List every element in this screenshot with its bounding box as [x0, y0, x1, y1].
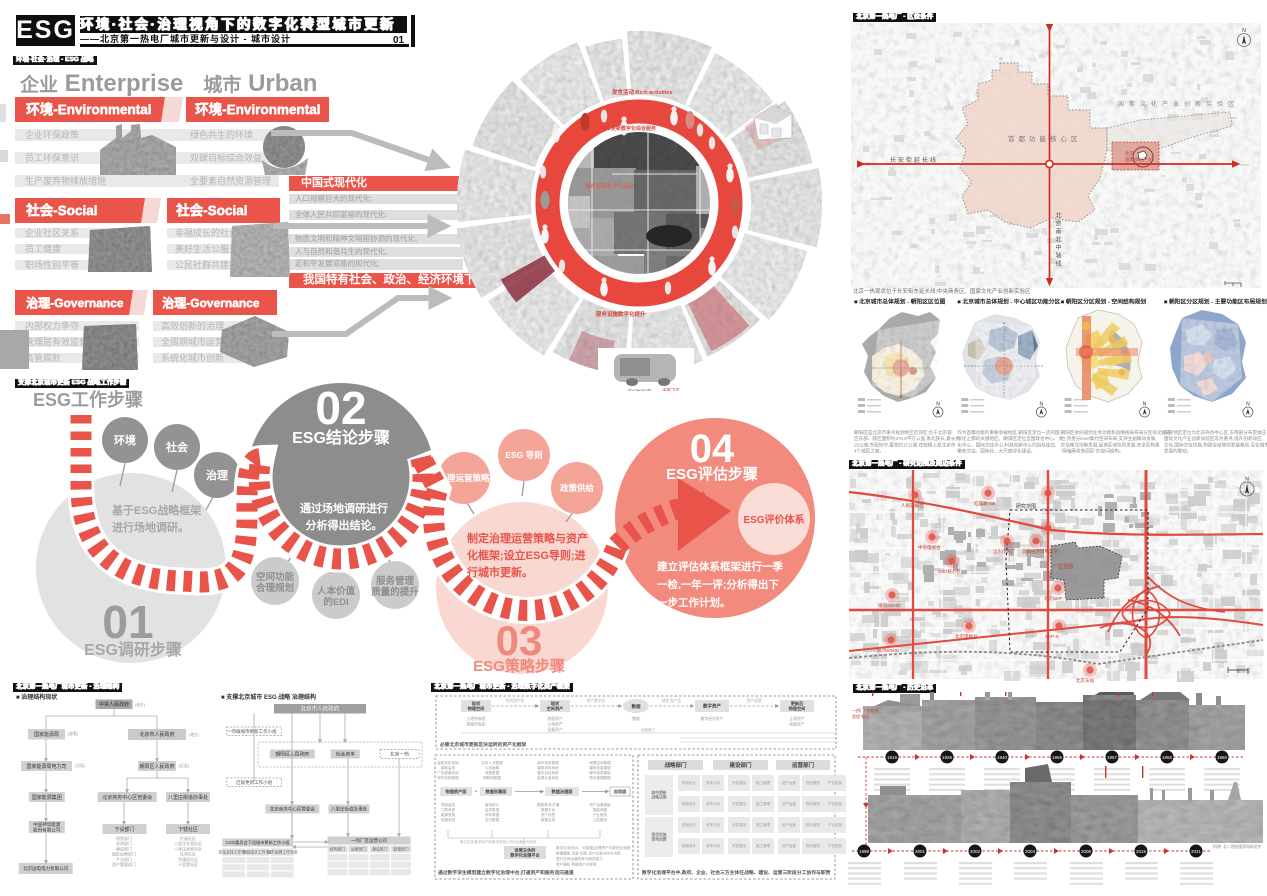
svg-text:红庙路T88: 红庙路T88	[974, 500, 996, 507]
svg-text:物理资产层: 物理资产层	[446, 788, 468, 795]
svg-text:银河SOHO: 银河SOHO	[878, 602, 901, 609]
svg-text:房屋资产: 房屋资产	[789, 722, 804, 727]
svg-text:通过数字孪生模型建立数字化治理中台,打通资产和服务双向通道: 通过数字孪生模型建立数字化治理中台,打通资产和服务双向通道	[438, 869, 574, 876]
svg-text:能耗监测: 能耗监测	[441, 765, 456, 770]
svg-text:社会资本: 社会资本	[336, 751, 355, 758]
svg-text:厂区范围: 厂区范围	[1053, 563, 1073, 570]
svg-text:区级更新工作小组: 区级更新工作小组	[236, 779, 272, 786]
svg-text:国家文化产业: 国家文化产业	[1125, 156, 1152, 163]
svg-text:发言活动 Rich activities: 发言活动 Rich activities	[611, 88, 673, 96]
svg-text:一热厂区运营公司: 一热厂区运营公司	[351, 837, 387, 844]
svg-text:消费数据: 消费数据	[485, 770, 500, 775]
svg-text:北京东站: 北京东站	[1076, 677, 1094, 684]
svg-text:进行场地调研。: 进行场地调研。	[112, 520, 189, 534]
svg-text:建立评估体系框架进行一季: 建立评估体系框架进行一季	[656, 560, 783, 573]
svg-text:N: N	[1246, 402, 1250, 408]
svg-text:朝阳区依托规划主体功能和战略格局布局分区的功能定: 朝阳区依托规划主体功能和战略格局布局分区的功能定	[1061, 429, 1172, 436]
svg-text:城市更新数字化综合服务: 城市更新数字化综合服务	[601, 125, 657, 132]
svg-text:长安街延长线: 长安街延长线	[890, 156, 938, 164]
svg-text:制定治理运营策略与资产: 制定治理运营策略与资产	[467, 531, 588, 545]
svg-text:位,完善分level集约空间布局,支持主副联动发展,: 位,完善分level集约空间布局,支持主副联动发展,	[1061, 435, 1157, 442]
svg-text:门禁系统: 门禁系统	[441, 807, 456, 812]
svg-text:政策供给: 政策供给	[560, 483, 595, 493]
svg-text:02: 02	[315, 382, 366, 434]
svg-text:停车系统数据: 停车系统数据	[437, 775, 459, 780]
svg-text:分析得出结论。: 分析得出结论。	[306, 518, 383, 532]
svg-text:建设部门: 建设部门	[729, 761, 752, 769]
svg-text:ESG评估步骤: ESG评估步骤	[666, 465, 758, 483]
svg-text:八里庄西里社区: 八里庄西里社区	[174, 845, 202, 851]
svg-text:城市信息模型: 城市信息模型	[589, 770, 611, 775]
svg-text:资产运营: 资产运营	[782, 801, 796, 806]
svg-text:北京一热: 北京一热	[390, 751, 409, 758]
svg-text:能源计量系统: 能源计量系统	[537, 775, 559, 780]
svg-text:■ 朝阳区分区规划 - 主要功能区布局规划: ■ 朝阳区分区规划 - 主要功能区布局规划	[1164, 298, 1267, 306]
svg-text:数据清洗/打通: 数据清洗/打通	[537, 802, 560, 807]
svg-text:中央人民政府: 中央人民政府	[99, 701, 129, 708]
svg-text:N: N	[1245, 477, 1249, 483]
svg-text:研究范围: 研究范围	[1016, 503, 1036, 510]
svg-text:公共服务: 公共服务	[593, 817, 608, 822]
svg-text:规划部门: 规划部门	[116, 835, 132, 841]
svg-text:落地运营: 落地运营	[650, 837, 666, 842]
svg-text:■ 朝阳区分区规划 - 空间结构规划: ■ 朝阳区分区规划 - 空间结构规划	[1061, 298, 1147, 306]
svg-text:运营部门: 运营部门	[792, 761, 815, 769]
svg-text:资产运营看板: 资产运营看板	[589, 802, 611, 807]
svg-text:开发建设: 开发建设	[732, 801, 746, 806]
svg-text:北京市人民政府: 北京市人民政府	[301, 705, 340, 713]
svg-text:开发建设: 开发建设	[732, 843, 746, 848]
svg-text:能源表具: 能源表具	[441, 812, 456, 817]
svg-text:开发建设: 开发建设	[732, 822, 746, 827]
svg-text:提升空间运营效率与服务能力: 提升空间运营效率与服务能力	[556, 856, 603, 861]
svg-text:1999: 1999	[859, 849, 870, 854]
svg-text:社会: 社会	[165, 440, 189, 454]
svg-text:朝阳区人民政府: 朝阳区人民政府	[139, 763, 174, 770]
svg-text:发展的联动。: 发展的联动。	[1164, 448, 1192, 455]
svg-text:下辖社区: 下辖社区	[178, 826, 198, 833]
svg-text:■ 北京城市总体规划 - 中心城区功能分区: ■ 北京城市总体规划 - 中心城区功能分区	[957, 298, 1060, 306]
svg-text:北京一热现状位于长安街东延长线;中央商务区、国家文化产业创新: 北京一热现状位于长安街东延长线;中央商务区、国家文化产业创新实验区	[853, 287, 1031, 295]
svg-text:资产运营: 资产运营	[782, 780, 796, 785]
svg-text:数据: 数据	[632, 716, 640, 721]
svg-text:必要北京城市更新区块运转的资产化框架: 必要北京城市更新区块运转的资产化框架	[439, 741, 527, 748]
svg-text:1950: 1950	[1217, 755, 1228, 760]
svg-text:规划设计: 规划设计	[682, 843, 696, 848]
svg-text:国家能源集团: 国家能源集团	[32, 794, 62, 801]
svg-text:会员数据: 会员数据	[485, 807, 500, 812]
svg-text:N: N	[1039, 402, 1043, 408]
svg-text:京通苑社区: 京通苑社区	[178, 856, 198, 862]
svg-text:运营部门: 运营部门	[351, 847, 366, 852]
svg-text:数据辅助·运营·招商·资产交易评估与决策: 数据辅助·运营·招商·资产交易评估与决策	[556, 851, 621, 856]
svg-text:国家能源局电力司: 国家能源局电力司	[26, 763, 66, 770]
svg-text:产业部门: 产业部门	[116, 856, 132, 862]
svg-text:国际文化产业创新试验区等为重点,提升创新效应,: 国际文化产业创新试验区等为重点,提升创新效应,	[1164, 435, 1263, 442]
svg-text:规划设计: 规划设计	[682, 780, 696, 785]
svg-text:城市更新数字化综合: 城市更新数字化综合	[585, 182, 635, 190]
svg-text:支付数据: 支付数据	[485, 817, 500, 822]
svg-text:转化为产品: 转化为产品	[662, 698, 681, 703]
svg-text:空间资产: 空间资产	[547, 705, 564, 712]
svg-text:1956: 1956	[1052, 755, 1063, 760]
svg-text:物业服务: 物业服务	[806, 843, 820, 848]
svg-text:园区运营部门: 园区运营部门	[112, 851, 136, 857]
svg-text:资产确权·数据资产化探索: 资产确权·数据资产化探索	[556, 862, 597, 867]
svg-text:物业管理数据: 物业管理数据	[589, 775, 611, 780]
svg-text:(区县): (区县)	[179, 763, 190, 768]
svg-text:N: N	[1143, 402, 1147, 408]
svg-text:物理空间: 物理空间	[468, 705, 485, 712]
svg-text:ESG工作步骤: ESG工作步骤	[33, 389, 143, 410]
svg-text:实时人流数据: 实时人流数据	[481, 760, 503, 765]
svg-text:东部地区定位为北京商务中心区,东南部分布定福庄: 东部地区定位为北京商务中心区,东南部分布定福庄	[1164, 429, 1267, 436]
svg-text:视频监控: 视频监控	[441, 802, 456, 807]
svg-text:(司局): (司局)	[75, 763, 86, 768]
svg-text:N: N	[1242, 28, 1246, 34]
svg-text:ESG评价体系: ESG评价体系	[743, 513, 804, 526]
svg-text:施工管理: 施工管理	[756, 801, 770, 806]
svg-text:2003: 2003	[1025, 849, 1036, 854]
svg-text:北京电视台: 北京电视台	[955, 633, 978, 640]
svg-text:化中心、国际交往中心,科技创新中心的指标定位,: 化中心、国际交往中心,科技创新中心的指标定位,	[957, 441, 1056, 448]
svg-text:广告屏幕系统: 广告屏幕系统	[437, 770, 459, 775]
svg-text:银河SOHO: 银河SOHO	[877, 647, 900, 654]
svg-text:环境: 环境	[114, 433, 136, 447]
svg-text:建设部门: 建设部门	[116, 845, 132, 851]
svg-text:土地资产: 土地资产	[547, 722, 562, 727]
svg-text:物业服务: 物业服务	[806, 801, 820, 806]
svg-text:产业招商: 产业招商	[828, 801, 842, 806]
svg-text:4个城区之首。: 4个城区之首。	[854, 448, 884, 455]
svg-text:运营部门: 运营部门	[641, 727, 655, 732]
svg-text:北京南北中轴线: 北京南北中轴线	[1054, 211, 1061, 268]
svg-text:建设部门: 建设部门	[372, 847, 387, 852]
svg-text:施工管理: 施工管理	[756, 780, 770, 785]
svg-text:八里庄东里社区: 八里庄东里社区	[174, 840, 202, 846]
svg-text:超市系统数据: 超市系统数据	[537, 760, 559, 765]
svg-text:1940: 1940	[997, 755, 1008, 760]
svg-text:资产标签: 资产标签	[541, 812, 556, 817]
svg-text:数据平台: 数据平台	[541, 807, 556, 812]
svg-text:数据: 数据	[632, 703, 641, 710]
svg-text:中央电视台: 中央电视台	[918, 544, 941, 551]
svg-text:股份有限公司: 股份有限公司	[33, 826, 60, 833]
svg-text:治理: 治理	[206, 468, 228, 482]
svg-text:文化,国际交往功能,构建全域联动发展格局,深化城市: 文化,国际交往功能,构建全域联动发展格局,深化城市	[1164, 441, 1267, 448]
svg-text:物业服务: 物业服务	[806, 780, 820, 785]
svg-text:"四统" 北二热由国家电网北京: "四统" 北二热由国家电网北京	[1212, 844, 1262, 849]
svg-text:土地所有权: 土地所有权	[467, 716, 486, 721]
svg-text:"两轴两带多园区"的空间结构。: "两轴两带多园区"的空间结构。	[1061, 448, 1124, 455]
svg-text:作为首都功能的重要承载地区,朝阳区定位一流的国: 作为首都功能的重要承载地区,朝阳区定位一流的国	[957, 429, 1060, 436]
svg-text:产业招商: 产业招商	[828, 780, 842, 785]
svg-text:服务管理: 服务管理	[376, 575, 415, 587]
svg-text:+: +	[475, 789, 478, 795]
svg-text:数据采集层: 数据采集层	[486, 788, 508, 795]
svg-text:数据目录: 数据目录	[541, 817, 556, 822]
svg-text:战略部门: 战略部门	[664, 761, 687, 769]
svg-text:吸引主体:数字地产商/数字科技公司与运营公司合作: 吸引主体:数字地产商/数字科技公司与运营公司合作	[460, 839, 537, 844]
svg-text:04: 04	[690, 427, 735, 471]
svg-text:楼宇自控系统: 楼宇自控系统	[537, 770, 559, 775]
svg-text:2015: 2015	[1136, 849, 1147, 854]
svg-text:房屋资产: 房屋资产	[547, 716, 562, 721]
svg-text:资本计划: 资本计划	[706, 822, 720, 827]
svg-text:化框架;设立ESG导则;进: 化框架;设立ESG导则;进	[467, 548, 586, 562]
svg-text:(地方): (地方)	[189, 732, 200, 737]
svg-text:施工管理: 施工管理	[756, 822, 770, 827]
svg-text:产业招商: 产业招商	[828, 822, 842, 827]
svg-text:的EDI: 的EDI	[323, 596, 348, 608]
svg-text:国家能源局: 国家能源局	[34, 731, 59, 738]
svg-text:北京商务中心区管委会: 北京商务中心区管委会	[270, 806, 315, 813]
svg-text:人本价值: 人本价值	[317, 585, 356, 597]
svg-text:CBD核心区: CBD核心区	[938, 568, 962, 575]
svg-text:施工管理: 施工管理	[756, 843, 770, 848]
svg-text:应用层: 应用层	[614, 788, 627, 795]
svg-text:质量的提升: 质量的提升	[371, 586, 419, 598]
svg-text:规划设计: 规划设计	[682, 801, 696, 806]
svg-text:■ 治理结构现状: ■ 治理结构现状	[16, 693, 58, 701]
svg-text:1919: 1919	[887, 755, 898, 760]
svg-text:■ 北京城市总体规划 - 朝阳区区位图: ■ 北京城市总体规划 - 朝阳区区位图	[854, 298, 946, 306]
svg-text:战略决策: 战略决策	[651, 795, 666, 800]
svg-text:北京: 北京	[1125, 150, 1134, 157]
svg-text:1957: 1957	[1107, 755, 1118, 760]
svg-text:八里庄街道办事处: 八里庄街道办事处	[168, 794, 208, 801]
svg-text:客流统计: 客流统计	[485, 802, 500, 807]
svg-text:规划设计: 规划设计	[682, 822, 696, 827]
svg-text:设备资产: 设备资产	[547, 727, 562, 732]
svg-text:数字化治理平台中,政府、企业、社会三方主体在战略、建设、运营: 数字化治理平台中,政府、企业、社会三方主体在战略、建设、运营三阶段分工协作与职责	[642, 869, 831, 876]
svg-text:ESG 导则: ESG 导则	[505, 450, 542, 460]
svg-text:城市运营工作专班: 城市运营工作专班	[267, 850, 298, 855]
svg-text:资产数字化: 资产数字化	[587, 698, 606, 703]
svg-text:城市更新: 城市更新	[651, 790, 666, 795]
svg-text:01: 01	[102, 596, 153, 648]
svg-text:朝阳区是北京市重点规划地区近郊区,位于北京城: 朝阳区是北京市重点规划地区近郊区,位于北京城	[854, 429, 952, 436]
svg-text:资本计划: 资本计划	[706, 801, 720, 806]
svg-text:远东仪表厂: 远东仪表厂	[993, 548, 1016, 555]
svg-text:产业服务: 产业服务	[593, 812, 608, 817]
svg-text:北京SKP: 北京SKP	[1044, 595, 1062, 602]
svg-text:基于ESG战略框架: 基于ESG战略框架	[111, 503, 201, 517]
svg-text:数字化手段(AI、大数据)治理资产与服务全流程: 数字化手段(AI、大数据)治理资产与服务全流程	[556, 845, 630, 850]
svg-text:结构部门: 结构部门	[330, 847, 345, 852]
svg-text:1955: 1955	[1162, 755, 1173, 760]
svg-text:2001: 2001	[915, 849, 926, 854]
svg-text:人民日报社: 人民日报社	[901, 502, 924, 509]
svg-text:数字经济资产: 数字经济资产	[701, 716, 724, 721]
svg-text:■ 支撑北京城市 ESG 战略 治理结构: ■ 支撑北京城市 ESG 战略 治理结构	[221, 693, 316, 701]
svg-text:开发建设: 开发建设	[732, 780, 746, 785]
svg-text:数据治理层: 数据治理层	[552, 788, 574, 795]
svg-text:CSG委员会下设城市更新工作小组: CSG委员会下设城市更新工作小组	[226, 839, 290, 846]
svg-text:数字化治理平台: 数字化治理平台	[510, 852, 539, 859]
svg-text:SKP-S: SKP-S	[1045, 634, 1059, 639]
svg-text:资本计划: 资本计划	[706, 780, 720, 785]
svg-text:土地资产: 土地资产	[789, 716, 804, 721]
svg-text:产业招商: 产业招商	[828, 843, 842, 848]
svg-text:一步工作计划。: 一步工作计划。	[657, 596, 731, 609]
svg-text:里程"标志…: 里程"标志…	[852, 713, 873, 719]
svg-text:物理空间: 物理空间	[789, 705, 806, 712]
svg-text:国家文化产业创新实验区: 国家文化产业创新实验区	[1118, 100, 1239, 108]
svg-text:际化之都的关键地区。朝阳区定位全国政治中心、文: 际化之都的关键地区。朝阳区定位全国政治中心、文	[957, 435, 1063, 442]
svg-text:区东部、辖区面积约470.8平方公里,南北狭长,最长约: 区东部、辖区面积约470.8平方公里,南北狭长,最长约	[854, 435, 960, 442]
svg-text:红庙社区: 红庙社区	[180, 835, 196, 841]
svg-text:首都功能核心区: 首都功能核心区	[1008, 134, 1082, 143]
svg-text:服务设施数字化提升: 服务设施数字化提升	[596, 310, 646, 318]
svg-text:行城市更新。: 行城市更新。	[466, 565, 533, 579]
svg-text:智能安防系统: 智能安防系统	[437, 760, 459, 765]
svg-text:建筑信息模型: 建筑信息模型	[589, 765, 611, 770]
svg-text:物业服务: 物业服务	[806, 822, 820, 827]
svg-text:数字资产: 数字资产	[703, 703, 721, 710]
svg-text:03: 03	[496, 617, 543, 664]
svg-text:空间资产化: 空间资产化	[506, 698, 525, 703]
svg-text:ESG调研步骤: ESG调研步骤	[84, 640, 182, 659]
svg-text:一热厂" 团结湖: 一热厂" 团结湖	[852, 707, 879, 713]
svg-text:下设部门: 下设部门	[114, 826, 134, 833]
svg-text:项目实施: 项目实施	[651, 832, 666, 837]
svg-text:资本计划: 资本计划	[706, 843, 720, 848]
svg-text:2002: 2002	[970, 849, 981, 854]
svg-text:物联网数据: 物联网数据	[483, 775, 501, 780]
svg-text:资产运营: 资产运营	[782, 843, 796, 848]
svg-text:资产运营: 资产运营	[746, 698, 761, 703]
svg-text:(央企): (央企)	[135, 702, 146, 707]
svg-text:首都经济贸易大学: 首都经济贸易大学	[1022, 548, 1058, 555]
svg-text:聚焦交往、国际化、大尺度绿化建设。: 聚焦交往、国际化、大尺度绿化建设。	[957, 448, 1035, 455]
svg-text:N: N	[936, 402, 940, 408]
svg-text:监管部门: 监管部门	[393, 847, 408, 852]
svg-text:一检,一年一评;分析得出下: 一检,一年一评;分析得出下	[657, 578, 779, 591]
svg-text:空间功能: 空间功能	[256, 571, 295, 583]
svg-text:2008: 2008	[1081, 849, 1092, 854]
svg-text:25公里;东西较窄,最宽约17公里,在规模上是北京市: 25公里;东西较窄,最宽约17公里,在规模上是北京市	[854, 441, 956, 448]
svg-text:建筑机电系统: 建筑机电系统	[537, 765, 559, 770]
svg-text:发改部门: 发改部门	[116, 840, 132, 846]
svg-text:合理规划: 合理规划	[256, 582, 294, 594]
svg-text:房屋所有权: 房屋所有权	[467, 722, 486, 727]
svg-text:人流画像: 人流画像	[485, 765, 500, 770]
svg-text:停车数据: 停车数据	[485, 812, 500, 817]
svg-text:资产管理部门: 资产管理部门	[112, 861, 136, 867]
svg-text:(部委): (部委)	[68, 731, 79, 736]
svg-text:北京国电电力有限公司: 北京国电电力有限公司	[23, 865, 68, 872]
svg-text:地理空间数据: 地理空间数据	[589, 760, 611, 765]
svg-text:ESG结论步骤: ESG结论步骤	[292, 428, 390, 447]
svg-text:北京商务中心区管委会: 北京商务中心区管委会	[102, 794, 152, 801]
svg-text:ESG策略步骤: ESG策略步骤	[473, 657, 565, 675]
svg-text:住邦社区: 住邦社区	[180, 851, 196, 857]
svg-text:智能调度: 智能调度	[593, 807, 608, 812]
svg-text:实现南北均衡发展,促进区域协同发展,在全区构建: 实现南北均衡发展,促进区域协同发展,在全区构建	[1061, 441, 1160, 448]
svg-text:1926: 1926	[942, 755, 953, 760]
svg-text:资产运营: 资产运营	[782, 822, 796, 827]
svg-text:北京市人民政府: 北京市人民政府	[139, 731, 174, 738]
svg-text:电梯系统: 电梯系统	[441, 817, 456, 822]
svg-text:通过场地调研进行: 通过场地调研进行	[300, 501, 388, 515]
svg-text:2021: 2021	[1191, 849, 1202, 854]
svg-text:十里堡社区: 十里堡社区	[178, 861, 198, 867]
svg-text:八里庄街道办事处: 八里庄街道办事处	[331, 806, 367, 813]
